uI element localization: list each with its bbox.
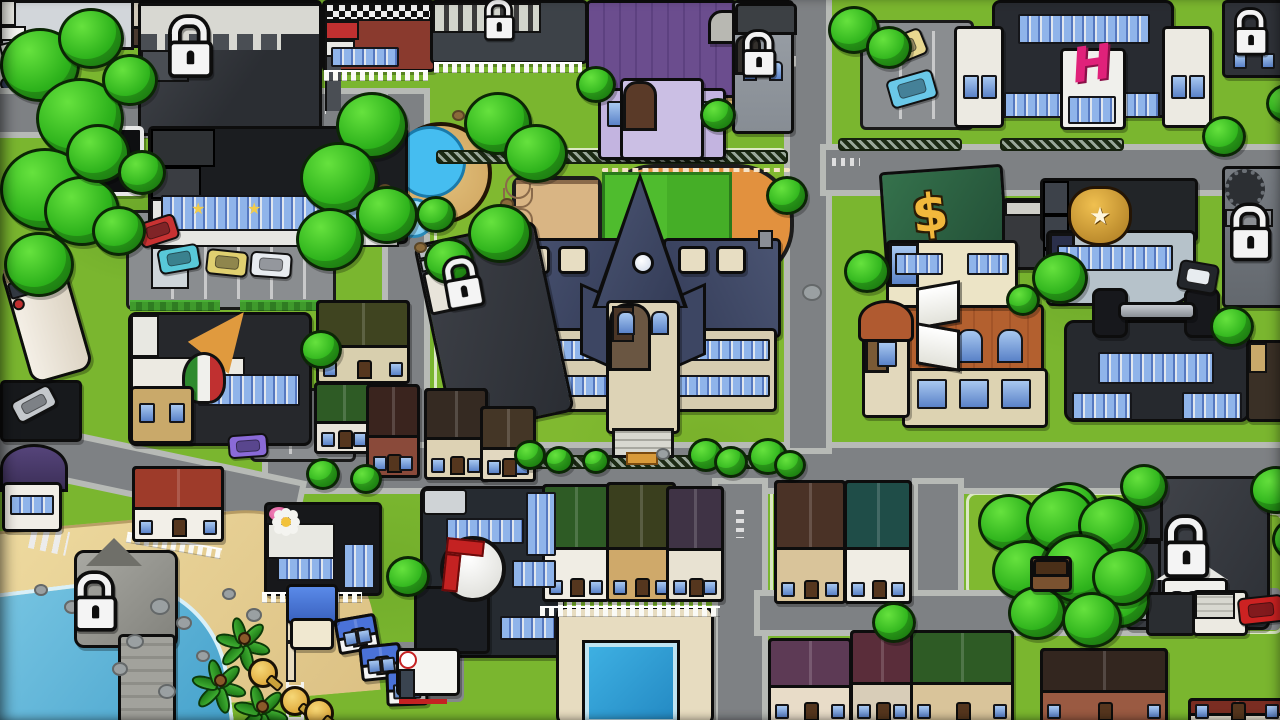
school-door-mat — [626, 452, 658, 465]
tree — [774, 450, 806, 480]
door — [876, 702, 891, 720]
tree — [514, 440, 546, 470]
school-dormer — [558, 246, 588, 274]
roof — [366, 384, 420, 438]
lock-keyhole — [1248, 35, 1254, 45]
wing-window — [963, 75, 979, 99]
door — [172, 518, 187, 537]
tree — [296, 208, 364, 271]
tree — [714, 446, 748, 478]
hospital-windows — [512, 560, 556, 588]
treehouse-hut[interactable] — [1030, 556, 1072, 592]
bank-windows — [895, 253, 943, 275]
purple-car — [227, 433, 269, 460]
lock-keyhole — [92, 605, 99, 618]
rock — [656, 448, 670, 460]
checker-awning — [325, 3, 433, 21]
lock-keyhole — [756, 57, 762, 67]
bank-windows — [967, 253, 1009, 275]
window — [356, 628, 372, 645]
gym-low-window — [1072, 392, 1132, 420]
gym-glass — [1098, 352, 1214, 384]
rock — [112, 662, 128, 676]
south-house-4[interactable] — [1040, 648, 1168, 720]
rock — [34, 584, 48, 596]
window — [1195, 704, 1209, 719]
window — [367, 658, 382, 674]
window — [467, 458, 481, 473]
ambulance-cross — [399, 651, 417, 669]
east-hedge — [838, 138, 962, 151]
door — [357, 360, 372, 379]
door — [570, 578, 585, 597]
tree — [416, 196, 456, 233]
tree — [1062, 592, 1122, 648]
dark-garage[interactable] — [1146, 592, 1196, 636]
treehouse-roof — [1033, 559, 1069, 577]
tree — [468, 204, 532, 263]
tree — [1008, 586, 1066, 640]
ambulance[interactable] — [396, 648, 460, 696]
store-star-icon: ★ — [247, 201, 261, 217]
diner-sign-red — [325, 21, 359, 40]
library-tower — [862, 330, 910, 418]
car-roof — [145, 221, 171, 240]
window — [1147, 704, 1161, 719]
window — [851, 582, 865, 597]
tower-gear — [1225, 169, 1265, 209]
car-roof — [1185, 267, 1210, 286]
shop-side-glass — [343, 543, 375, 589]
tree — [766, 176, 808, 215]
road-marks — [736, 510, 744, 538]
lifeguard-tower[interactable] — [286, 584, 338, 684]
tree — [582, 448, 610, 474]
red-sports-car — [1237, 594, 1280, 627]
round-roof-house[interactable] — [0, 444, 62, 528]
roof — [768, 638, 852, 688]
lock-keyhole — [187, 51, 195, 65]
lock-icon[interactable] — [1164, 518, 1207, 573]
door — [1098, 702, 1113, 720]
roof — [844, 480, 912, 550]
green-roof-house[interactable] — [314, 382, 374, 454]
book-right-page — [916, 322, 960, 372]
tree — [576, 66, 616, 103]
window — [613, 580, 627, 595]
door — [804, 580, 819, 599]
east-hedge — [1000, 138, 1124, 151]
school-dormer — [716, 246, 746, 274]
pizza-annex — [130, 386, 194, 444]
white-car — [249, 251, 293, 280]
car-roof — [896, 78, 927, 100]
shop-window-frame — [267, 523, 335, 559]
door — [804, 702, 819, 720]
tree — [300, 330, 342, 369]
rock — [196, 650, 210, 662]
collectible-magnifier[interactable] — [248, 658, 278, 688]
palm-trunk — [256, 700, 269, 713]
city-hall-fence — [434, 62, 582, 73]
hospital-tower-glass — [526, 492, 556, 556]
cross-bar — [442, 553, 462, 592]
window — [893, 704, 907, 719]
road-south-2 — [918, 484, 958, 602]
school-clock — [632, 252, 654, 274]
hospital-windows — [500, 616, 556, 640]
ambulance-stripe — [399, 699, 447, 704]
road-vertical-center — [790, 0, 826, 448]
door — [689, 578, 704, 597]
collectible-magnifier[interactable] — [304, 698, 334, 720]
tower-window — [617, 311, 635, 335]
lifeguard-cabin — [290, 618, 334, 650]
window — [487, 460, 501, 475]
window — [825, 582, 839, 597]
wing-window — [1171, 75, 1187, 99]
parking-hedge — [240, 300, 326, 311]
brown-roof-house[interactable] — [424, 388, 488, 480]
window — [389, 362, 403, 377]
lock-icon[interactable] — [1234, 10, 1266, 52]
wing-window — [1189, 75, 1205, 99]
door — [338, 430, 353, 449]
window — [917, 704, 931, 719]
house-base — [2, 482, 62, 532]
library-base — [902, 368, 1048, 428]
window — [1047, 704, 1061, 719]
bank-dollar-sign: $ — [909, 186, 950, 241]
tree — [844, 250, 890, 293]
church-roof — [735, 3, 797, 35]
shop-glass — [277, 557, 335, 581]
beach-house[interactable] — [132, 466, 224, 542]
hotel-east-wing — [1162, 26, 1212, 128]
tree — [306, 458, 340, 490]
window — [703, 580, 717, 595]
tree — [102, 54, 158, 106]
lock-icon[interactable] — [1230, 206, 1269, 257]
base-window — [1001, 379, 1031, 409]
roof — [666, 486, 724, 551]
roof — [314, 382, 374, 424]
brick-house[interactable] — [366, 384, 420, 478]
window — [589, 580, 603, 595]
window — [775, 704, 789, 719]
store-star-icon: ★ — [191, 201, 205, 217]
arch-window — [957, 329, 983, 363]
tower-window — [651, 311, 669, 335]
window — [781, 582, 795, 597]
window — [993, 704, 1007, 719]
annex-stripe — [1005, 201, 1045, 216]
palm-trunk — [214, 674, 227, 687]
lock-icon[interactable] — [484, 0, 513, 37]
window — [857, 704, 871, 719]
road-marks — [832, 158, 860, 166]
tree — [872, 602, 916, 643]
car-roof — [1247, 601, 1275, 618]
garage-door[interactable] — [1195, 593, 1235, 619]
door — [1231, 702, 1246, 720]
library-tower-cone — [858, 300, 914, 342]
south-house-2[interactable] — [850, 630, 914, 720]
school-windows — [676, 375, 770, 397]
tree — [350, 464, 382, 494]
school-dormer — [678, 246, 708, 274]
pier-walkway[interactable] — [118, 634, 176, 720]
ambulance-windshield — [399, 669, 415, 699]
roof — [424, 388, 488, 440]
lock-keyhole — [497, 22, 502, 31]
lock-icon[interactable] — [168, 18, 211, 73]
corner-house[interactable] — [1188, 698, 1280, 720]
wing-window — [981, 75, 997, 99]
car-roof — [166, 250, 192, 267]
window — [203, 520, 217, 535]
skylight — [1043, 181, 1069, 215]
roof-unit — [423, 489, 467, 515]
hotel-h-sign: H — [1069, 37, 1115, 90]
window — [1265, 704, 1279, 719]
tree — [866, 26, 912, 69]
base-window — [917, 379, 947, 409]
window — [353, 432, 367, 447]
rock — [126, 634, 144, 649]
dirt-patch — [452, 110, 465, 121]
tree — [386, 556, 430, 597]
yellow-car — [205, 248, 249, 278]
dorm-door-arch[interactable] — [623, 81, 657, 131]
diving-board[interactable] — [0, 0, 16, 26]
shed-door — [1249, 343, 1267, 373]
locked-building-northwest[interactable] — [138, 0, 322, 136]
lock-icon[interactable] — [742, 32, 774, 74]
rock — [246, 608, 262, 622]
window — [673, 580, 687, 595]
roof — [132, 466, 224, 510]
door — [956, 702, 971, 720]
house-row-fence — [540, 606, 720, 617]
palm-trunk — [238, 632, 251, 645]
gym-low-window — [1182, 392, 1242, 420]
tree — [1266, 84, 1280, 123]
arch-window — [997, 329, 1023, 363]
diner-fence — [324, 70, 428, 81]
lock-keyhole — [1247, 236, 1254, 249]
roof — [1040, 648, 1168, 693]
south-house-3[interactable] — [910, 630, 1014, 720]
south-house-1[interactable] — [768, 638, 852, 720]
car-roof — [236, 439, 260, 452]
tree — [356, 186, 418, 244]
tower-window — [877, 341, 897, 367]
annex-window — [139, 403, 155, 423]
window — [431, 458, 445, 473]
roof — [774, 480, 846, 550]
tree — [4, 232, 74, 297]
rock — [158, 684, 176, 699]
roof-hatch — [131, 315, 159, 357]
police-badge-icon: ★ — [1068, 186, 1132, 246]
dorm-gable — [620, 78, 704, 160]
tree — [1210, 306, 1254, 347]
tree — [92, 206, 146, 256]
door — [450, 456, 465, 475]
window — [891, 582, 905, 597]
house-row-3[interactable] — [666, 486, 724, 602]
diner-windows — [331, 47, 399, 67]
parking-hedge — [130, 300, 220, 311]
lock-icon[interactable] — [74, 574, 115, 627]
town-map[interactable]: ★ ★ — [0, 0, 1280, 720]
house-row-4[interactable] — [774, 480, 846, 604]
window — [399, 456, 413, 471]
annex-window — [169, 403, 185, 423]
brick-diner[interactable] — [322, 0, 436, 72]
dumbbell-bar — [1118, 302, 1196, 320]
badge-star-icon: ★ — [1089, 204, 1111, 228]
school-chimney — [758, 230, 773, 249]
rv-taillight — [11, 297, 26, 312]
window — [831, 704, 845, 719]
hotel-entrance-glass — [1068, 96, 1116, 124]
open-book-icon — [916, 284, 996, 332]
flower-shop[interactable] — [264, 502, 382, 596]
car-roof — [258, 258, 283, 272]
window — [139, 520, 153, 535]
lock-keyhole — [1183, 551, 1191, 565]
tree — [118, 150, 166, 195]
school-tower-wall — [606, 300, 680, 434]
house-row-5[interactable] — [844, 480, 912, 604]
tree — [1006, 284, 1040, 316]
hotel-west-wing — [954, 26, 1004, 128]
tree — [504, 124, 568, 183]
rock — [222, 588, 236, 600]
tree — [544, 446, 574, 474]
door — [872, 580, 887, 599]
flower-icon — [281, 517, 291, 527]
garden-shed[interactable] — [1246, 340, 1280, 422]
rock — [176, 616, 192, 630]
roof — [910, 630, 1014, 685]
pool-water — [582, 640, 680, 720]
rock — [802, 284, 822, 301]
car-roof — [20, 393, 48, 415]
house-windows — [10, 495, 54, 515]
window — [321, 432, 335, 447]
tree — [1032, 252, 1088, 304]
base-window — [959, 379, 989, 409]
rock — [150, 598, 170, 615]
door — [635, 578, 650, 597]
tree — [1202, 116, 1246, 157]
tree — [700, 98, 736, 132]
car-roof — [214, 255, 240, 270]
